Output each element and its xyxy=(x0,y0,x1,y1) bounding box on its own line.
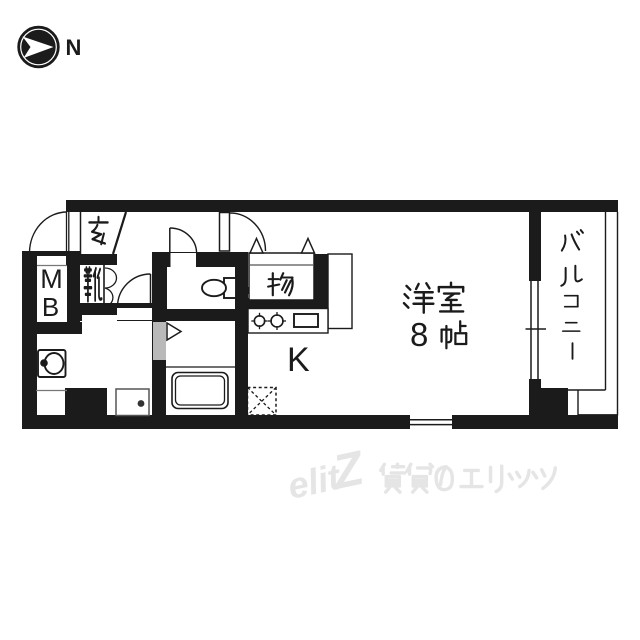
svg-text:8: 8 xyxy=(410,316,428,353)
svg-text:N: N xyxy=(66,35,82,60)
svg-text:M: M xyxy=(40,264,63,294)
svg-text:K: K xyxy=(287,341,310,379)
svg-text:B: B xyxy=(42,292,59,322)
